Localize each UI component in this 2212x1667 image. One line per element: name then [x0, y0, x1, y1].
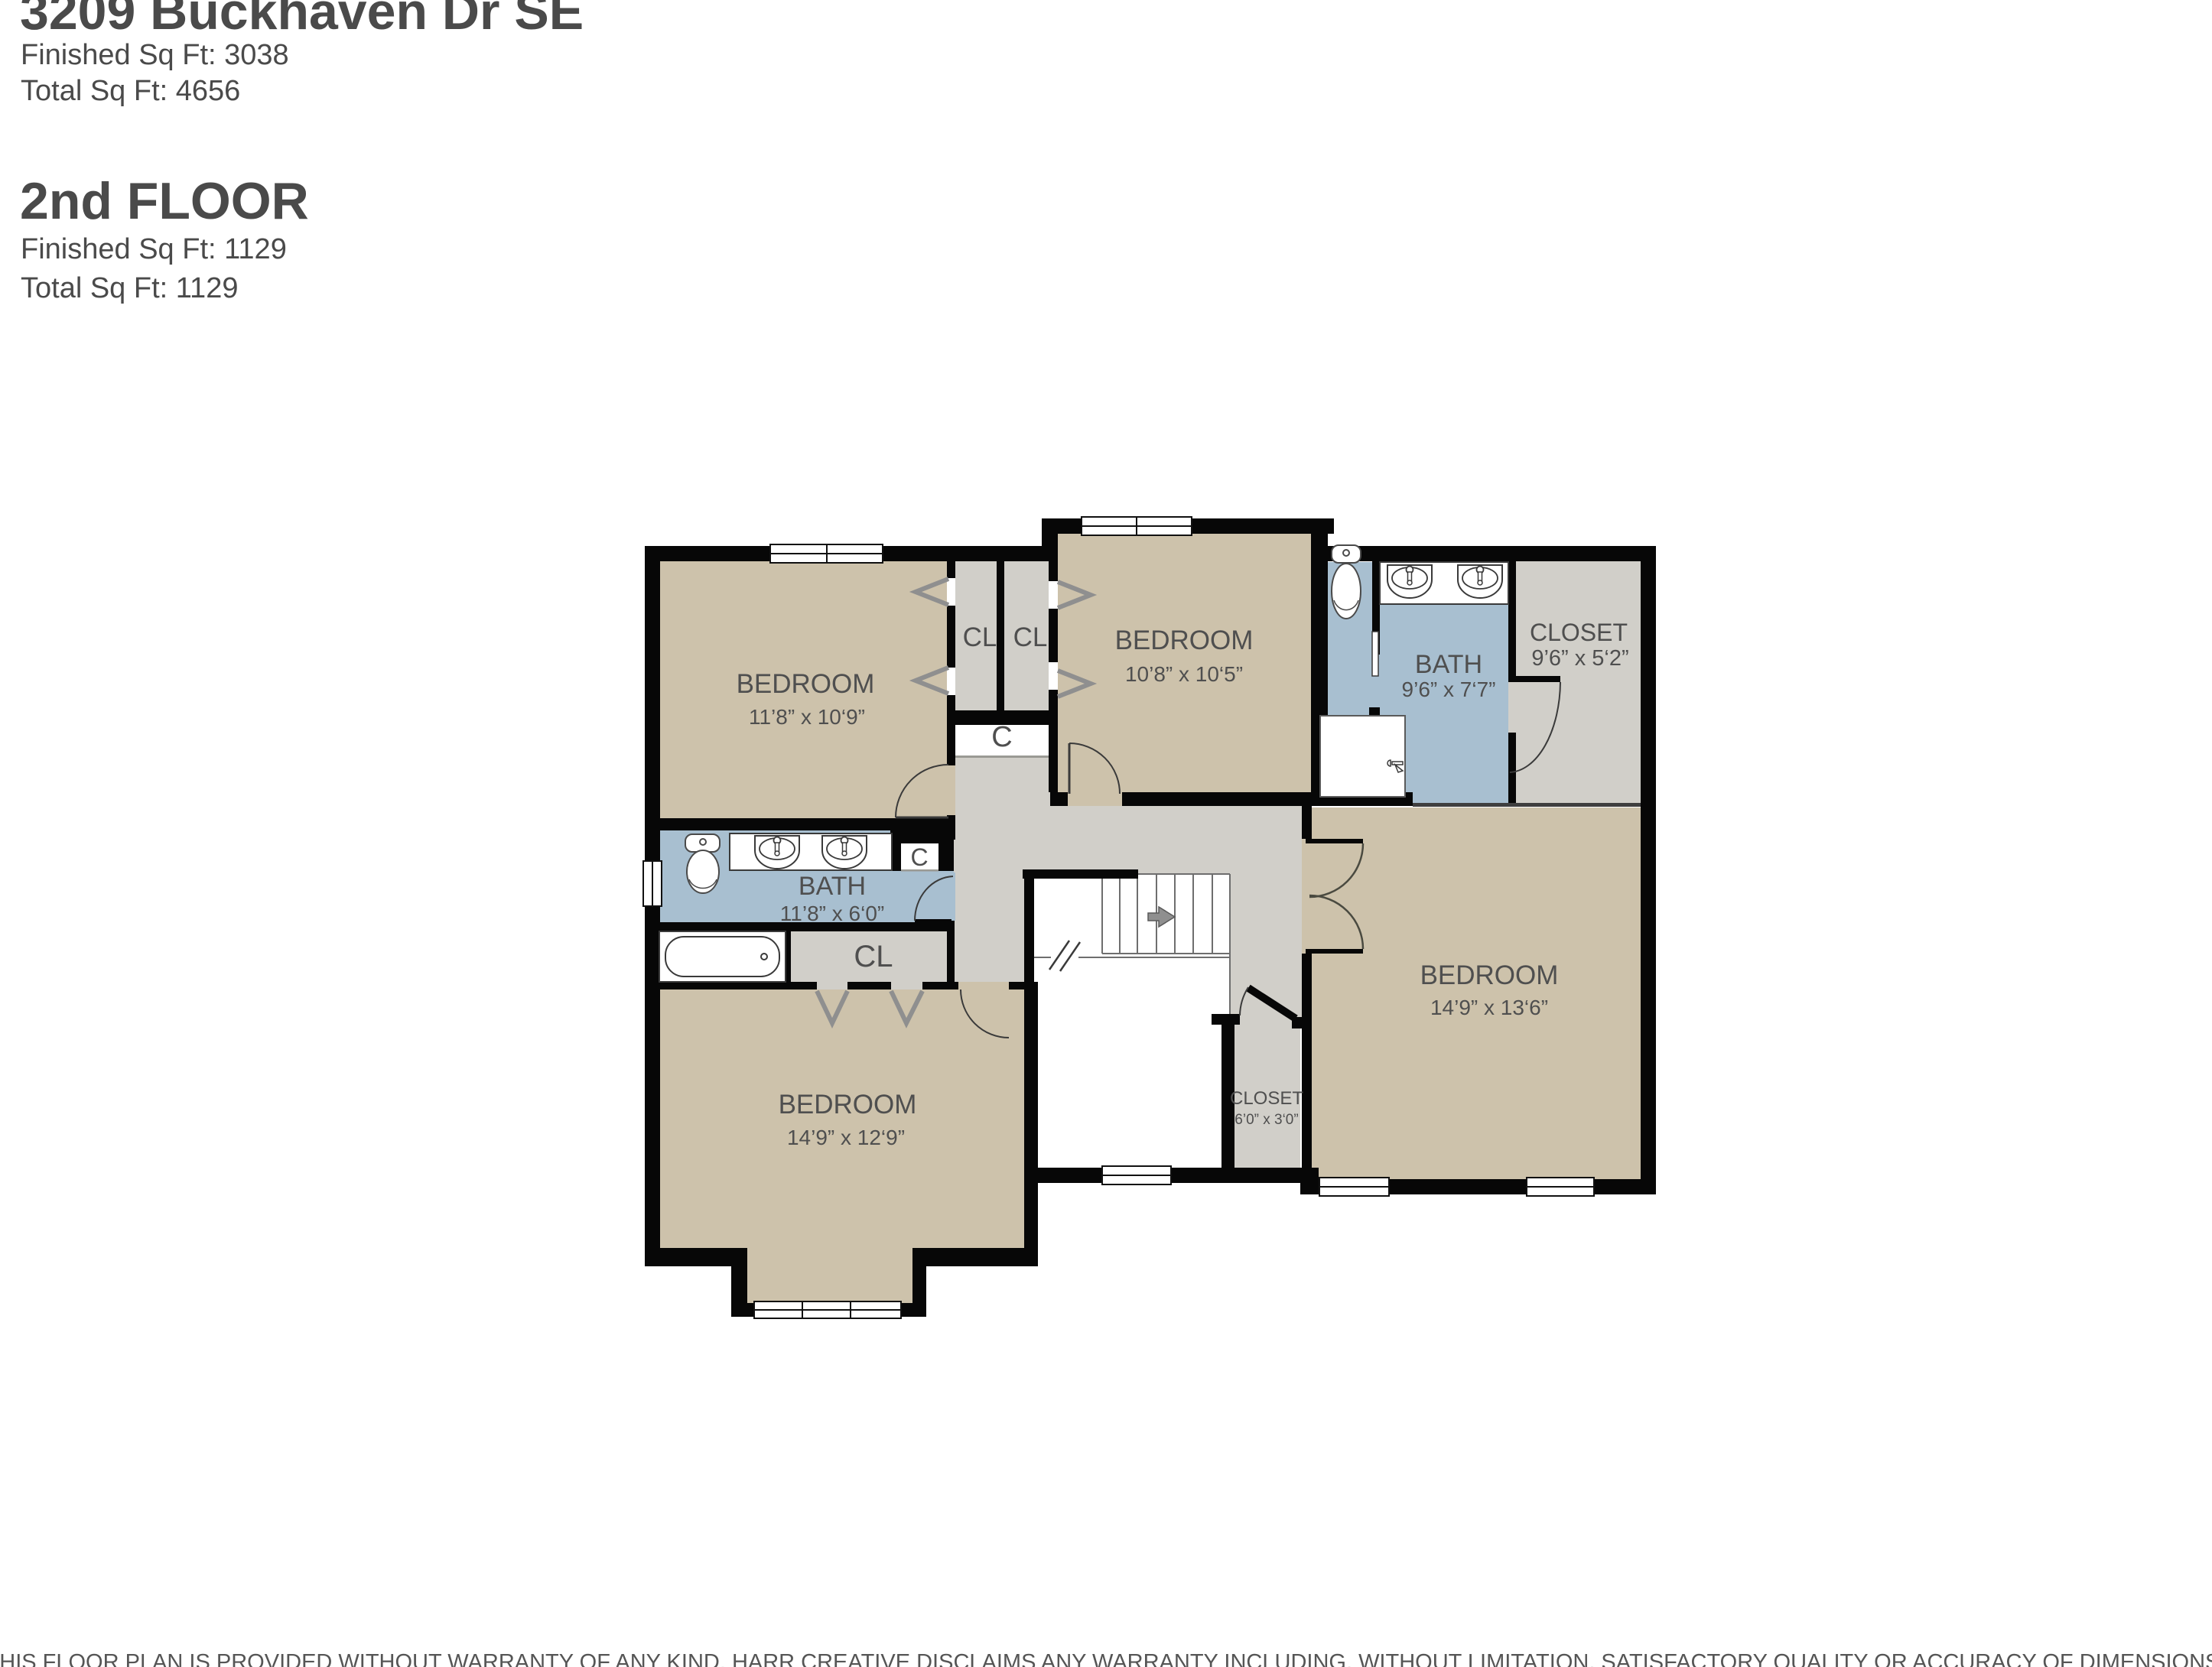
- svg-text:CL: CL: [963, 622, 997, 652]
- svg-text:BATH: BATH: [799, 872, 866, 901]
- svg-text:Finished Sq Ft: 3038: Finished Sq Ft: 3038: [21, 39, 289, 71]
- svg-text:14’9” x 13‘6”: 14’9” x 13‘6”: [1430, 996, 1548, 1019]
- svg-text:2nd FLOOR: 2nd FLOOR: [20, 172, 309, 230]
- svg-text:C: C: [991, 721, 1012, 753]
- svg-text:THIS FLOOR PLAN IS PROVIDED WI: THIS FLOOR PLAN IS PROVIDED WITHOUT WARR…: [0, 1650, 2212, 1667]
- svg-text:BEDROOM: BEDROOM: [1420, 960, 1559, 990]
- svg-text:3209 Buckhaven Dr SE: 3209 Buckhaven Dr SE: [20, 0, 584, 41]
- svg-text:CLOSET: CLOSET: [1530, 619, 1628, 646]
- svg-text:CL: CL: [854, 940, 893, 973]
- svg-text:BATH: BATH: [1415, 650, 1482, 679]
- svg-text:11’8” x 10‘9”: 11’8” x 10‘9”: [749, 705, 865, 729]
- svg-text:BEDROOM: BEDROOM: [779, 1090, 917, 1119]
- svg-text:BEDROOM: BEDROOM: [1115, 626, 1254, 655]
- svg-text:Total Sq Ft: 4656: Total Sq Ft: 4656: [21, 75, 240, 107]
- svg-text:6’0” x 3‘0”: 6’0” x 3‘0”: [1234, 1112, 1298, 1128]
- svg-text:BEDROOM: BEDROOM: [737, 669, 875, 699]
- svg-text:9’6” x 7‘7”: 9’6” x 7‘7”: [1402, 678, 1496, 701]
- svg-text:11’8” x 6‘0”: 11’8” x 6‘0”: [780, 902, 884, 925]
- svg-text:9’6” x 5‘2”: 9’6” x 5‘2”: [1531, 646, 1628, 671]
- svg-text:14’9” x 12‘9”: 14’9” x 12‘9”: [787, 1126, 905, 1149]
- svg-text:10’8” x 10‘5”: 10’8” x 10‘5”: [1125, 662, 1243, 686]
- svg-text:Finished Sq Ft: 1129: Finished Sq Ft: 1129: [21, 233, 287, 265]
- svg-text:CLOSET: CLOSET: [1230, 1088, 1303, 1109]
- svg-text:CL: CL: [1013, 622, 1048, 652]
- svg-text:C: C: [910, 843, 928, 871]
- svg-text:Total Sq Ft: 1129: Total Sq Ft: 1129: [21, 272, 238, 304]
